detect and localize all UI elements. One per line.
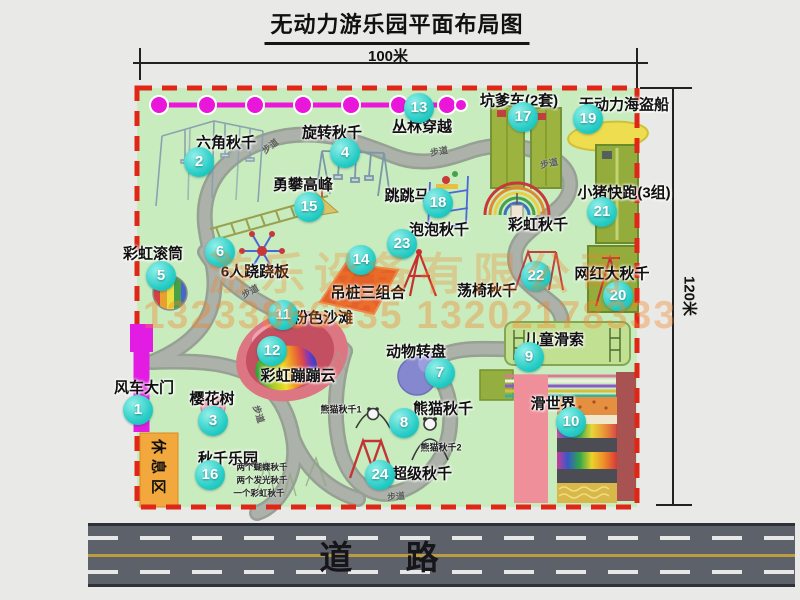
attraction-label-11: 粉色沙滩 [293, 307, 353, 328]
attraction-label-1: 风车大门 [114, 377, 174, 398]
attraction-badge-22: 22 [521, 261, 551, 291]
attraction-badge-3: 3 [198, 406, 228, 436]
attraction-badge-19: 19 [573, 104, 603, 134]
attraction-badge-4: 4 [330, 138, 360, 168]
attraction-badge-6: 6 [205, 237, 235, 267]
attraction-badge-20: 20 [603, 281, 633, 311]
extra-label-0: 彩虹秋千 [508, 214, 568, 235]
width-dimension-label: 100米 [368, 45, 408, 66]
attraction-badge-9: 9 [514, 342, 544, 372]
attraction-badge-18: 18 [423, 188, 453, 218]
attraction-label-21: 小猪快跑(3组) [577, 182, 670, 203]
attraction-label-22: 荡椅秋千 [457, 280, 517, 301]
attraction-label-24: 超级秋千 [392, 463, 452, 484]
attraction-badge-12: 12 [257, 336, 287, 366]
page-title: 无动力游乐园平面布局图 [264, 7, 529, 45]
height-dimension-label: 120米 [680, 276, 701, 316]
swing-note-0: 两个蝴蝶秋千 [236, 461, 287, 473]
attraction-badge-23: 23 [387, 229, 417, 259]
swing-note-1: 两个发光秋千 [236, 474, 287, 486]
path-marker-5: 步道 [386, 489, 405, 504]
attraction-badge-11: 11 [268, 300, 298, 330]
small-label-1: 熊猫秋千2 [420, 441, 461, 454]
road-label: 道 路 [319, 531, 460, 579]
attraction-badge-5: 5 [146, 261, 176, 291]
attraction-badge-10: 10 [556, 407, 586, 437]
attraction-badge-8: 8 [389, 408, 419, 438]
attraction-badge-16: 16 [195, 460, 225, 490]
attraction-badge-15: 15 [294, 192, 324, 222]
attraction-badge-24: 24 [365, 460, 395, 490]
attraction-badge-1: 1 [123, 395, 153, 425]
attraction-label-8: 熊猫秋千 [413, 398, 473, 419]
attraction-badge-14: 14 [346, 245, 376, 275]
attraction-badge-13: 13 [404, 93, 434, 123]
rest-area-label: 休息区 [149, 439, 170, 499]
attraction-badge-17: 17 [508, 102, 538, 132]
small-label-0: 熊猫秋千1 [320, 403, 361, 416]
attraction-label-23: 泡泡秋千 [409, 219, 469, 240]
park-layout-diagram: 无动力游乐园平面布局图 100米 120米 道 路 休息区 风车大门1六角秋千2… [0, 0, 800, 600]
attraction-badge-21: 21 [587, 197, 617, 227]
attraction-label-12: 彩虹蹦蹦云 [260, 365, 335, 386]
attraction-label-20: 网红大秋千 [574, 263, 649, 284]
swing-note-2: 一个彩虹秋千 [233, 487, 284, 499]
attraction-label-14: 吊桩三组合 [330, 282, 405, 303]
attraction-label-5: 彩虹滚筒 [123, 243, 183, 264]
attraction-badge-2: 2 [184, 147, 214, 177]
attraction-label-15: 勇攀高峰 [273, 174, 333, 195]
attraction-badge-7: 7 [425, 358, 455, 388]
attraction-label-6: 6人跷跷板 [221, 261, 289, 282]
